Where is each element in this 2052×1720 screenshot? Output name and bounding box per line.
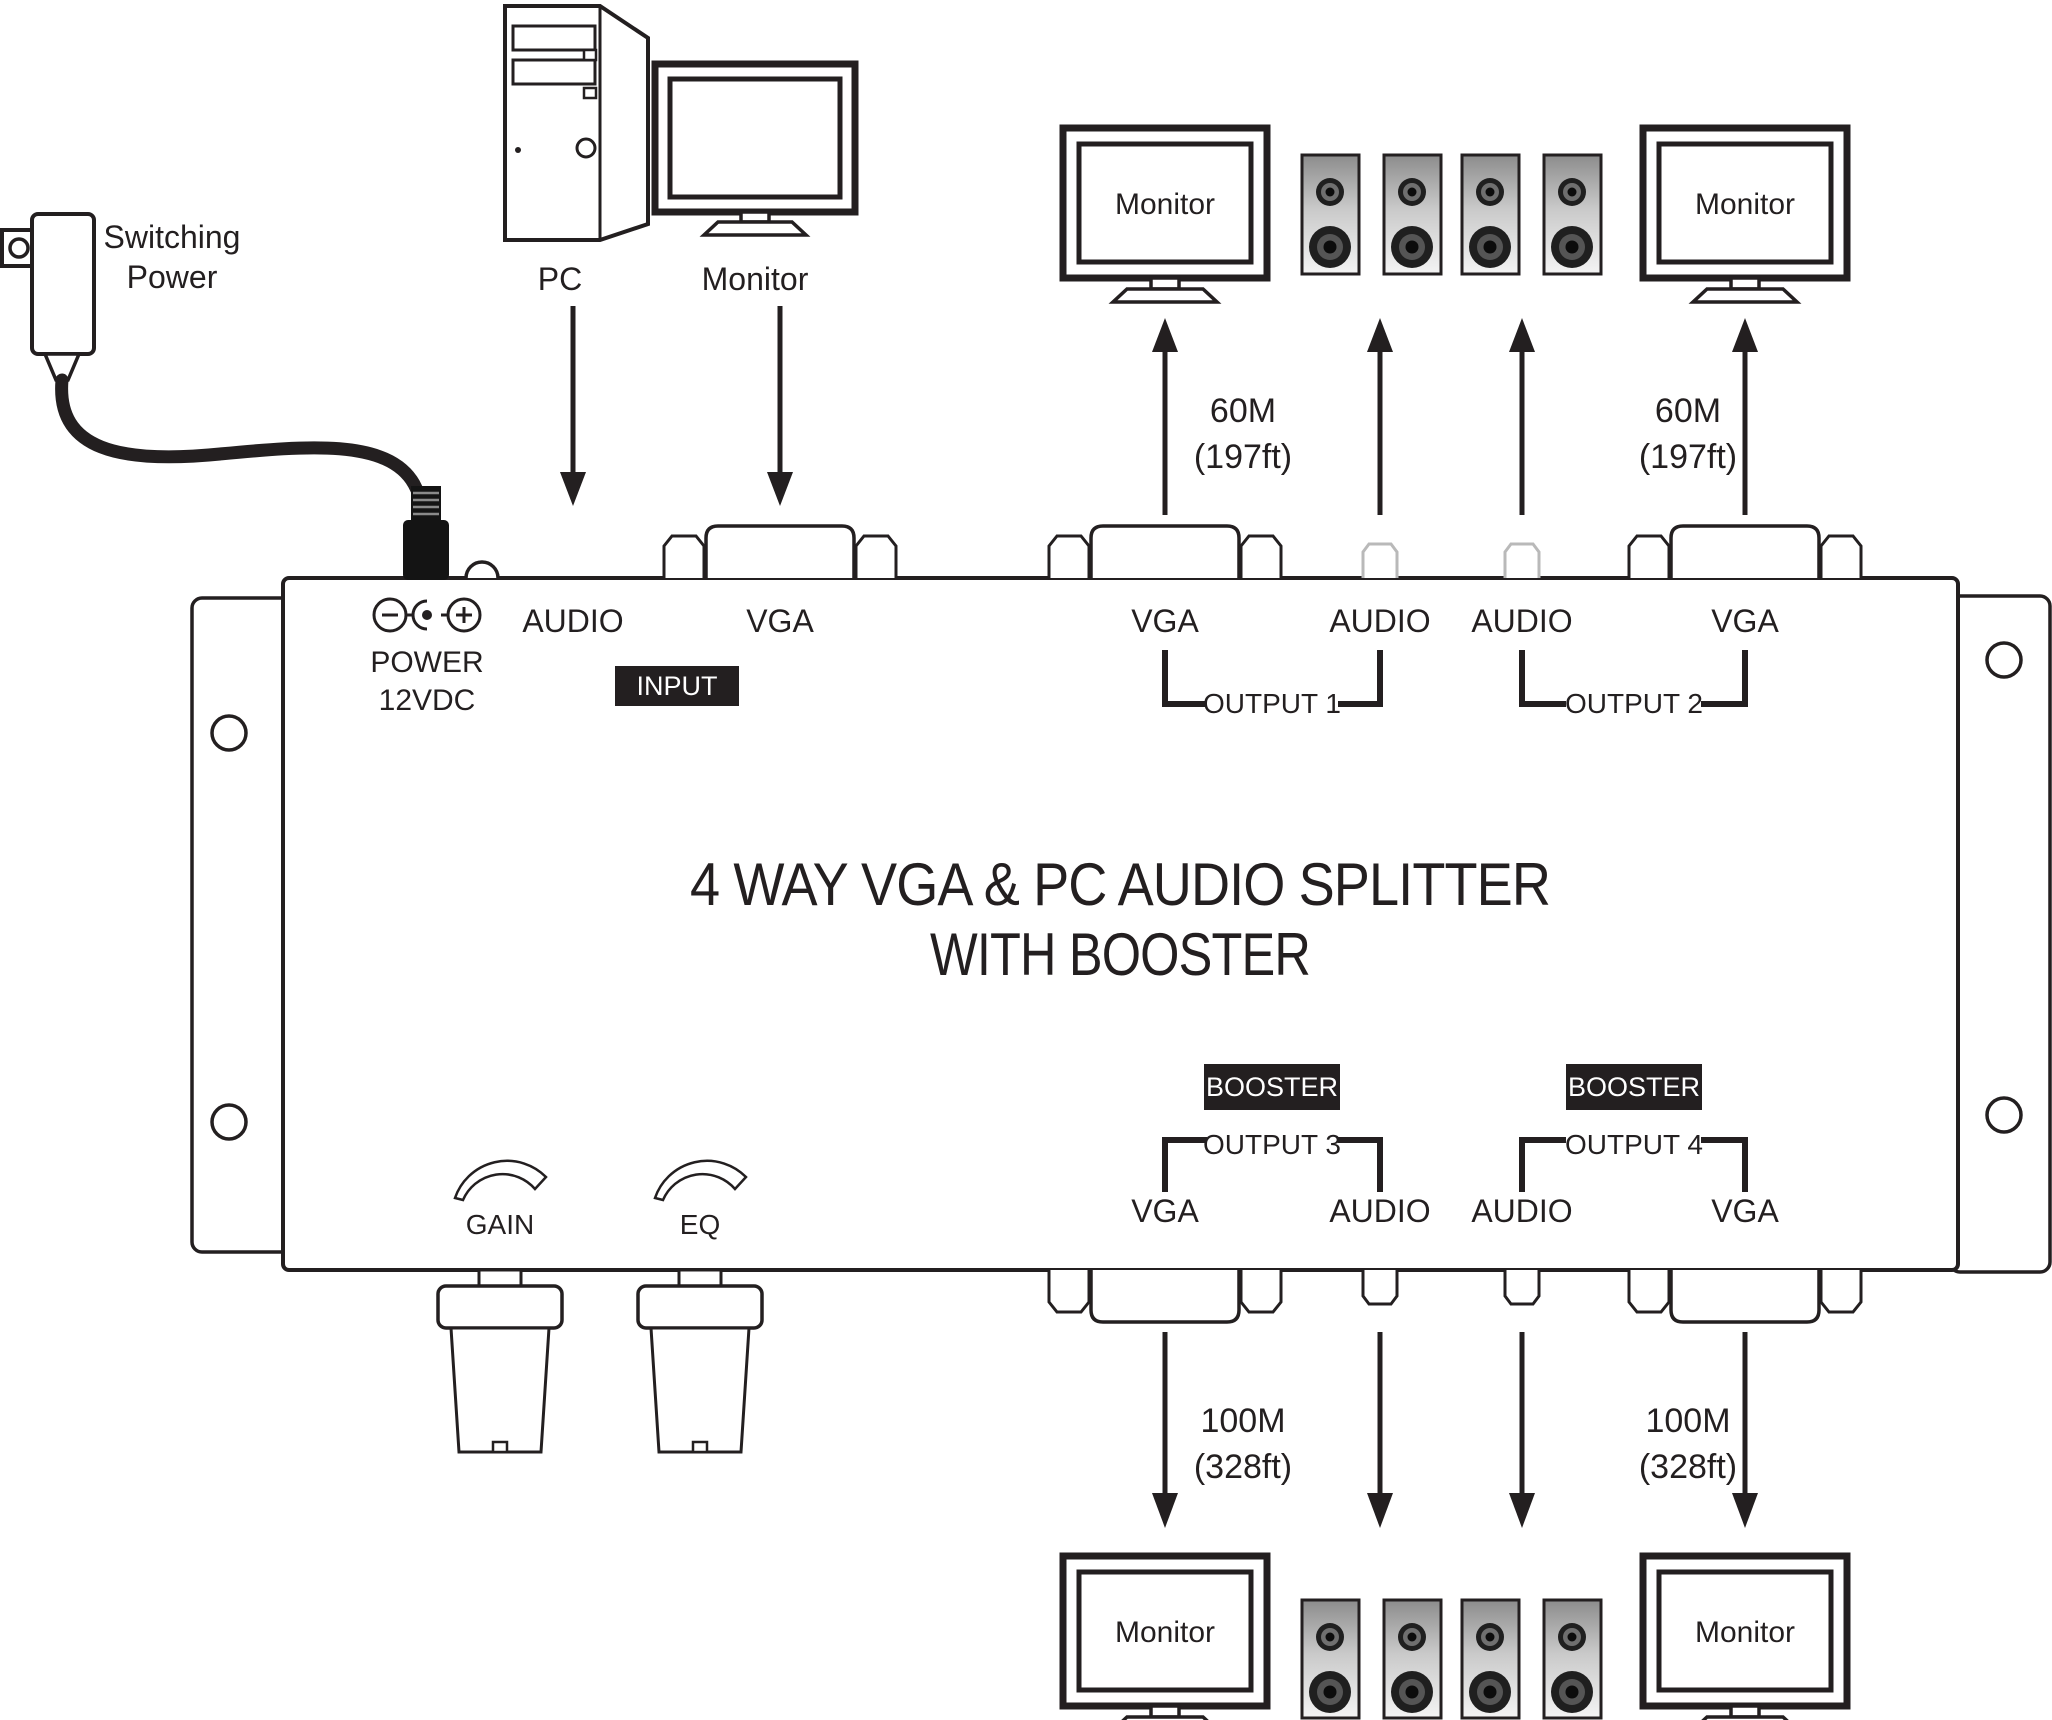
power-led-bump	[466, 562, 498, 578]
adapter-label-line1: Switching	[104, 219, 241, 255]
monitor-screen-label: Monitor	[1115, 1616, 1215, 1649]
diagram-canvas: Switching Power PC Monitor Monitor	[0, 0, 2052, 1720]
output2-monitor-icon: Monitor	[1643, 128, 1847, 302]
pc-drive-bay-2	[513, 60, 595, 84]
pc-eject-button-1	[584, 50, 596, 60]
monitor-screen-label: Monitor	[1695, 188, 1795, 221]
input-badge: INPUT	[615, 666, 739, 706]
output2-distance-m: 60M	[1655, 392, 1721, 430]
power-voltage-label: 12VDC	[379, 684, 476, 717]
right-mounting-ear	[1950, 596, 2050, 1272]
bottom-speaker-3-icon	[1462, 1600, 1519, 1718]
output3-distance-m: 100M	[1200, 1402, 1285, 1440]
output2-distance-ft: (197ft)	[1639, 438, 1737, 476]
adapter-body	[32, 214, 94, 354]
output4-audio-arrow	[1509, 1332, 1535, 1528]
gain-label: GAIN	[466, 1209, 534, 1240]
vga-input-port-icon	[664, 526, 896, 578]
output4-monitor-icon: Monitor	[1643, 1556, 1847, 1720]
power-barrel-plug-icon	[403, 486, 449, 580]
output3-vga-arrow	[1152, 1332, 1178, 1528]
input-monitor-label: Monitor	[702, 261, 809, 297]
output4-vga-arrow	[1732, 1332, 1758, 1528]
output4-audio-jack-icon	[1505, 1270, 1539, 1304]
booster-label: BOOSTER	[1206, 1072, 1338, 1102]
output1-audio-arrow	[1367, 318, 1393, 515]
output4-distance-ft: (328ft)	[1639, 1448, 1737, 1486]
output3-group-label: OUTPUT 3	[1203, 1129, 1341, 1160]
output4-distance-m: 100M	[1645, 1402, 1730, 1440]
top-speaker-3-icon	[1462, 155, 1519, 274]
input-audio-label: AUDIO	[522, 603, 623, 639]
vga-input-arrow	[767, 306, 793, 506]
splitter-wiring-diagram: Switching Power PC Monitor Monitor	[0, 0, 2052, 1720]
input-vga-label: VGA	[746, 603, 814, 639]
output3-vga-label: VGA	[1131, 1193, 1199, 1229]
monitor-screen-label: Monitor	[1695, 1616, 1795, 1649]
left-mounting-ear	[192, 598, 292, 1252]
output1-vga-port-icon	[1049, 526, 1281, 578]
switching-power-adapter-icon: Switching Power	[2, 214, 422, 500]
input-badge-label: INPUT	[637, 671, 718, 701]
output3-booster-badge: BOOSTER	[1204, 1064, 1340, 1110]
adapter-label-line2: Power	[127, 259, 218, 295]
output1-distance-m: 60M	[1210, 392, 1276, 430]
output1-group-label: OUTPUT 1	[1203, 688, 1341, 719]
bottom-speaker-4-icon	[1544, 1600, 1601, 1718]
output2-vga-arrow	[1732, 318, 1758, 515]
pc-led	[515, 147, 521, 153]
output3-distance-ft: (328ft)	[1194, 1448, 1292, 1486]
output2-group-label: OUTPUT 2	[1565, 688, 1703, 719]
output4-vga-port-icon	[1629, 1270, 1861, 1322]
monitor-stand-base	[1113, 289, 1217, 302]
diagram-title-line1: 4 WAY VGA & PC AUDIO SPLITTER	[690, 851, 1550, 918]
output2-audio-arrow	[1509, 318, 1535, 515]
output3-audio-jack-icon	[1363, 1270, 1397, 1304]
booster-label: BOOSTER	[1568, 1072, 1700, 1102]
power-cable	[62, 380, 422, 500]
power-label: POWER	[370, 646, 483, 679]
output3-audio-arrow	[1367, 1332, 1393, 1528]
output4-booster-badge: BOOSTER	[1566, 1064, 1702, 1110]
gain-knob-icon	[438, 1270, 562, 1452]
bottom-speaker-2-icon	[1384, 1600, 1441, 1718]
monitor-stand-base	[704, 222, 806, 235]
output4-audio-label: AUDIO	[1471, 1193, 1572, 1229]
output1-audio-jack-icon	[1363, 544, 1397, 578]
output2-vga-port-icon	[1629, 526, 1861, 578]
output1-vga-label: VGA	[1131, 603, 1199, 639]
bottom-speaker-1-icon	[1302, 1600, 1359, 1718]
top-speaker-4-icon	[1544, 155, 1601, 274]
monitor-screen	[670, 79, 840, 197]
output3-vga-port-icon	[1049, 1270, 1281, 1322]
output4-vga-label: VGA	[1711, 1193, 1779, 1229]
plug-prong-hole	[10, 239, 28, 257]
eq-label: EQ	[680, 1209, 720, 1240]
output3-audio-label: AUDIO	[1329, 1193, 1430, 1229]
eq-knob-icon	[638, 1270, 762, 1452]
pc-drive-bay-1	[513, 26, 595, 50]
output4-group-label: OUTPUT 4	[1565, 1129, 1703, 1160]
output1-distance-ft: (197ft)	[1194, 438, 1292, 476]
input-monitor-icon: Monitor	[655, 64, 855, 297]
output1-audio-label: AUDIO	[1329, 603, 1430, 639]
top-speaker-2-icon	[1384, 155, 1441, 274]
output1-monitor-icon: Monitor	[1063, 128, 1267, 302]
output2-audio-label: AUDIO	[1471, 603, 1572, 639]
monitor-screen-label: Monitor	[1115, 188, 1215, 221]
output1-vga-arrow	[1152, 318, 1178, 515]
pc-label: PC	[538, 261, 582, 297]
output2-audio-jack-icon	[1505, 544, 1539, 578]
diagram-title-line2: WITH BOOSTER	[930, 921, 1310, 988]
pc-eject-button-2	[584, 88, 596, 98]
output3-monitor-icon: Monitor	[1063, 1556, 1267, 1720]
monitor-stand-base	[1693, 289, 1797, 302]
audio-input-arrow	[560, 306, 586, 506]
pc-tower-icon: PC	[505, 6, 648, 297]
top-speaker-1-icon	[1302, 155, 1359, 274]
output2-vga-label: VGA	[1711, 603, 1779, 639]
